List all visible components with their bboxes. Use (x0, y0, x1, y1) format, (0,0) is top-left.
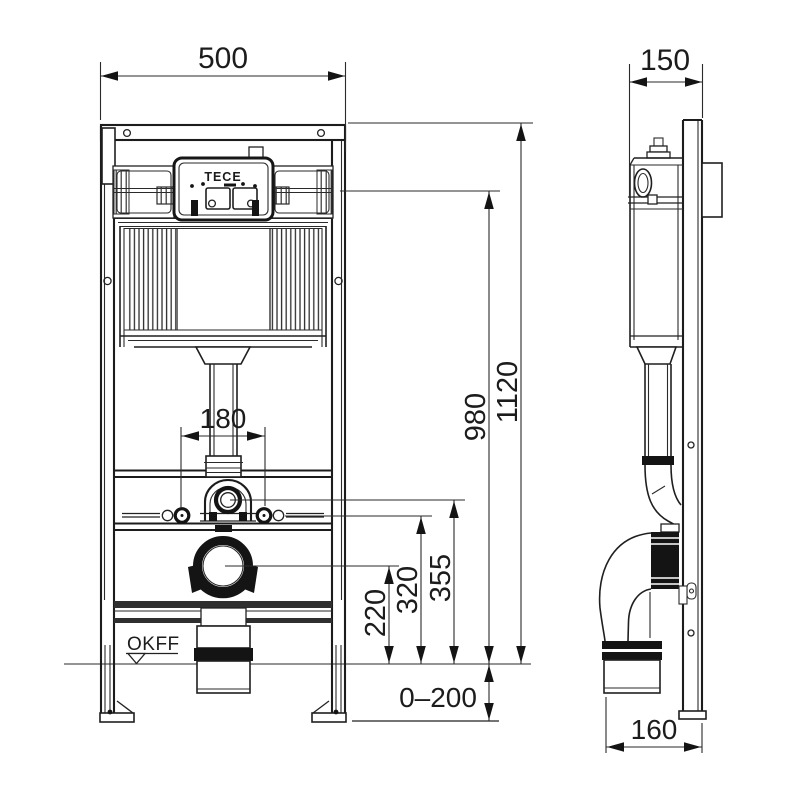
dim-drain-wall-distance-label: 160 (631, 714, 678, 745)
block-bracket (679, 586, 687, 604)
arrowhead-up (516, 124, 526, 141)
fill-valve-collar (647, 152, 670, 158)
drain-socket-front (188, 541, 258, 596)
dim-drain-center-height-label: 220 (360, 589, 392, 637)
cistern-ribbed-panel-left (126, 229, 176, 330)
rail-slot-hole (690, 589, 694, 593)
flush-elbow-cut-line (652, 486, 665, 494)
arrowhead-up (416, 517, 426, 534)
drain-pipe-mid (197, 626, 250, 648)
brand-logo: TECE (204, 170, 241, 184)
right-foot-plate (312, 713, 346, 722)
left-foot-plate (100, 713, 134, 722)
cistern-outlet-taper (196, 347, 250, 364)
elbow-outer-curve (600, 533, 651, 641)
arrowhead-up (484, 665, 494, 682)
drain-pipe-black-band (194, 648, 253, 661)
arrowhead-down (516, 646, 526, 663)
housing-foot-right (239, 512, 247, 521)
window-dot (201, 182, 205, 186)
arrowhead-left (182, 431, 199, 441)
bolt-left-center (181, 514, 184, 517)
window-clip-right (252, 200, 259, 216)
lower-crossbar (114, 524, 332, 533)
dim-upper-ref-height-label: 980 (460, 393, 492, 441)
installation-frame-technical-drawing: TECE (0, 0, 800, 800)
left-wing (113, 166, 174, 218)
drain-pipe-upper (201, 608, 246, 626)
arrowhead-up (484, 192, 494, 209)
floor-level-label: OKFF (127, 634, 180, 655)
arrowhead-right (328, 71, 345, 81)
cistern-clip (648, 195, 657, 204)
dim-fixing-bolt-height-label: 320 (392, 566, 424, 614)
window-dot (190, 184, 194, 188)
arrowhead-down (449, 646, 459, 663)
top-plate (101, 125, 345, 140)
flush-elbow-spigot (661, 524, 679, 532)
dim-flush-bend-height-label: 355 (425, 554, 457, 602)
rail-foot-cap (679, 711, 706, 719)
flush-pipe-coupling (204, 456, 243, 477)
flush-pipe-coupling-band (642, 456, 674, 465)
right-wing (272, 166, 333, 218)
socket-band-upper (602, 641, 662, 649)
arrowhead-right (684, 742, 701, 752)
floor-level-marker: OKFF (126, 634, 180, 664)
cistern-ribbed-panel-right (271, 229, 321, 330)
fill-valve-nut (650, 146, 667, 152)
drawing-canvas: TECE (0, 0, 800, 800)
wing-square-detail (273, 187, 289, 204)
left-foot-gusset (117, 701, 133, 713)
rod-guide-left (162, 510, 172, 520)
rail-hole-lower (688, 630, 694, 636)
coupling-body (206, 456, 241, 477)
left-foot-screw (108, 710, 113, 715)
elbow-inner-curve (628, 589, 651, 641)
dim-leg-adjust-range-label: 0–200 (399, 682, 477, 713)
bottom-bar-upper (114, 601, 332, 608)
top-crossbar (101, 125, 345, 140)
arrowhead-down (484, 646, 494, 663)
rod-guide-right (273, 510, 283, 520)
bolt-right-center (263, 514, 266, 517)
cistern-top-slope (630, 158, 634, 165)
wing-square-detail (157, 187, 173, 204)
housing-foot-left (209, 512, 217, 521)
arrowhead-down (484, 703, 494, 720)
arrowhead-down (384, 646, 394, 663)
right-foot-screw (334, 710, 339, 715)
crossbar-black-tab (215, 525, 232, 532)
level-triangle-icon (128, 654, 145, 664)
logo-underline-mark (224, 184, 236, 187)
arrowhead-right (247, 431, 264, 441)
connection-block (651, 532, 679, 589)
dim-side-depth-label: 150 (640, 44, 690, 77)
cistern (120, 226, 326, 364)
cistern-side-taper (637, 347, 676, 364)
flush-pipe-side (642, 364, 681, 532)
window-clip-left (191, 200, 198, 216)
dim-drain-wall-distance: 160 (606, 697, 702, 753)
fill-valve-stem (654, 138, 663, 146)
flush-elbow-outer (645, 465, 677, 526)
dim-flush-bend-height: 355 (230, 500, 465, 664)
socket-band-lower (602, 652, 662, 660)
flush-elbow-inner (671, 465, 681, 505)
window-dot (241, 182, 245, 186)
side-view (600, 120, 722, 719)
inspection-window: TECE (174, 147, 273, 220)
arrowhead-down (416, 646, 426, 663)
wall-bracket (702, 163, 722, 217)
cistern-side (628, 138, 683, 364)
rail-slot (687, 583, 696, 599)
drain-pipe-front (194, 608, 253, 693)
dim-fixing-bolt-spacing-label: 180 (200, 403, 247, 434)
drain-pipe-sleeve (197, 661, 250, 693)
rail-hole (688, 442, 694, 448)
right-foot-gusset (313, 701, 329, 713)
wc-connection-block (651, 532, 687, 604)
arrowhead-left (607, 742, 624, 752)
dim-front-width-label: 500 (198, 42, 248, 75)
dim-total-height-label: 1120 (492, 361, 524, 423)
arrowhead-left (101, 71, 118, 81)
dim-fixing-bolt-height: 320 (285, 516, 432, 664)
arrowhead-left (630, 77, 647, 87)
dim-leg-adjust-range: 0–200 (399, 664, 494, 721)
arrowhead-right (685, 77, 702, 87)
arrowhead-up (449, 501, 459, 518)
